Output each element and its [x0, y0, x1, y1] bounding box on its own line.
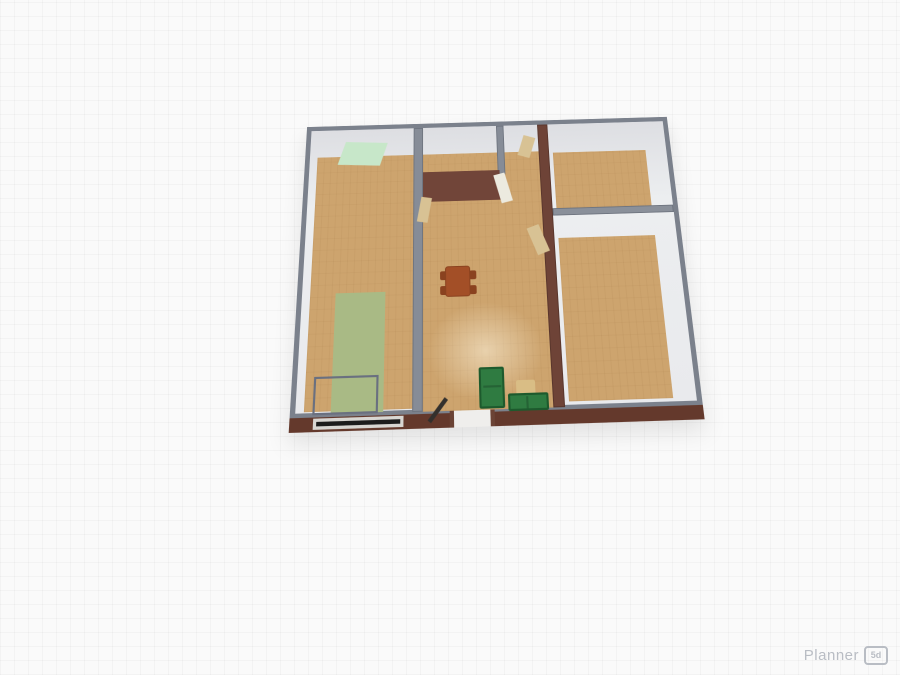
- planner5d-logo: Planner 5d: [804, 646, 888, 665]
- scene-3d-viewport[interactable]: [0, 0, 900, 675]
- app-canvas: { "logo": { "text": "Planner", "badge": …: [0, 0, 900, 675]
- front-door-post: [450, 411, 455, 428]
- front-door-opening: [453, 410, 492, 428]
- floor-right-bottom-room[interactable]: [558, 235, 673, 401]
- sofa-horizontal[interactable]: [508, 392, 549, 411]
- small-room-south-wall: [423, 170, 501, 202]
- planner5d-logo-text: Planner: [804, 647, 859, 664]
- dining-table[interactable]: [445, 266, 471, 297]
- low-partition-wall: [312, 375, 378, 415]
- interior-wall-left: [412, 128, 423, 412]
- floor-plan[interactable]: [289, 117, 705, 433]
- front-door-post: [490, 409, 495, 426]
- rug-mint[interactable]: [338, 142, 388, 166]
- floor-right-top-room[interactable]: [553, 150, 652, 208]
- planner5d-logo-badge-icon: 5d: [864, 646, 888, 665]
